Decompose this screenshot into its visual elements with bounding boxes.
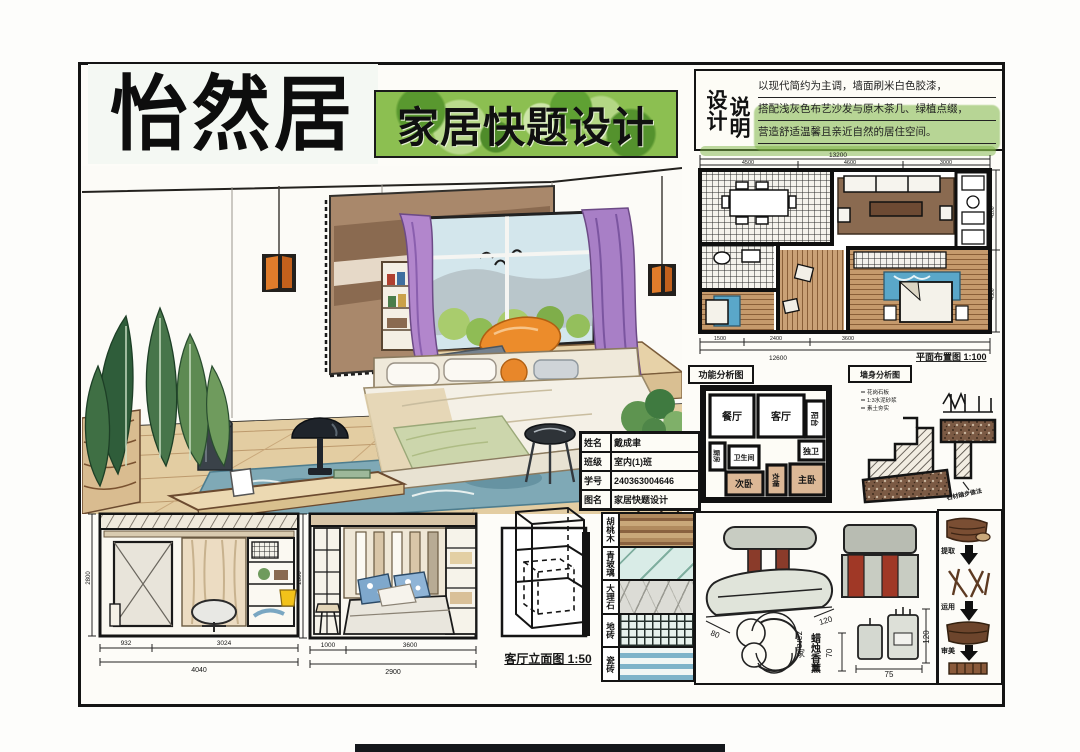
flow-arrow (960, 545, 978, 565)
prop-dim: 70 (825, 648, 834, 657)
material-swatch-wood (620, 514, 693, 546)
floor-plan: 13200 4500 4600 3000 (688, 150, 1002, 363)
info-table: 姓名 戴成聿 班级 室内(1)班 学号 240363004646 图名 家居快题… (579, 431, 701, 511)
section-notes: 花岗石板 1:3水泥砂浆 素土夯实 (861, 388, 897, 412)
design-notes-label: 设计 说明 (696, 71, 758, 149)
elev2-dim: 1000 (321, 642, 336, 649)
prop-sketches: 80 120 70 75 120 蜡烛香薰 zara家 (696, 513, 931, 678)
plan-dim-label: 3000 (940, 160, 952, 166)
material-swatch-glass (620, 548, 693, 580)
material-name: 大理石 (603, 581, 620, 613)
material-swatch-ceramic (620, 648, 693, 680)
elev1-shelf (248, 538, 296, 626)
flow-branches (949, 569, 989, 597)
elev2-left-shelf (314, 528, 340, 634)
function-diagram-title: 功能分析图 (698, 369, 743, 380)
cube-diagram (494, 506, 596, 646)
flow-wood-pile (947, 518, 990, 541)
room-label-bedroom2: 次卧 (735, 478, 753, 489)
concept-flow: 提取 运用 审美 (939, 511, 996, 678)
room-label-balcony: 阳台 (810, 412, 820, 427)
prop-dim: 80 (709, 629, 721, 641)
material-row: 地砖 (603, 615, 693, 649)
flow-arrow (960, 645, 978, 661)
plan-dim-label: 4600 (844, 160, 856, 166)
design-notes-line: 搭配浅灰色布艺沙发与原木茶几、绿植点缀， (758, 98, 996, 121)
elevations-caption: 客厅立面图 1:50 (478, 650, 618, 667)
svg-text:素土夯实: 素土夯实 (867, 404, 890, 412)
elev1-door (110, 542, 172, 626)
prop-dim: 120 (818, 614, 834, 626)
plan-dim-right (992, 170, 1000, 332)
material-swatch-tile (620, 615, 693, 647)
material-name: 瓷砖 (603, 648, 620, 680)
flow-step-label: 运用 (941, 603, 955, 611)
elev2-dim: 2900 (385, 669, 401, 676)
flow-step-label: 审美 (941, 646, 956, 655)
plan-dim-label: 3600 (842, 336, 854, 342)
material-row: 瓷砖 (603, 648, 693, 680)
info-label: 姓名 (581, 433, 611, 452)
prop-dim: 120 (922, 630, 931, 644)
info-value: 240363004646 (611, 471, 699, 490)
prop-note-brand: zara家 (795, 631, 805, 658)
wall-section-detail: 墙身分析图 花岗石板 1:3水泥砂浆 素土夯实 石材踏步做法 (847, 364, 1001, 510)
plan-dim-label: 13200 (829, 152, 847, 159)
diffuser-perspective (706, 527, 832, 617)
flow-arrow (960, 601, 978, 621)
room-label-dining: 餐厅 (721, 410, 742, 423)
plan-dim-label: 12600 (769, 355, 787, 362)
flow-result-strip (949, 663, 987, 674)
plan-bathroom (702, 246, 774, 288)
elev2-dim: 2800 (298, 571, 303, 585)
elevation-1: 932 3024 4040 2800 (84, 506, 316, 674)
info-label: 学号 (581, 471, 611, 490)
diffuser-front (842, 525, 918, 597)
material-name: 地砖 (603, 615, 620, 647)
flow-plank (947, 622, 989, 644)
presentation-board: 怡然居 家居快题设计 设计 说明 以现代简约为主调，墙面刷米白色胶漆， 搭配浅灰… (0, 0, 1080, 752)
room-label-living: 客厅 (770, 410, 791, 423)
plan-dim-label: 4500 (990, 288, 996, 299)
elev1-dim: 2800 (86, 571, 92, 585)
plan-caption: 平面布置图 1:100 (916, 351, 987, 362)
info-label: 班级 (581, 452, 611, 471)
info-value: 戴成聿 (611, 433, 699, 452)
prop-dim: 75 (885, 670, 894, 678)
plan-dim-label: 4500 (742, 160, 754, 166)
concept-flow-panel: 提取 运用 审美 (937, 509, 1003, 685)
elev2-dim: 3600 (403, 642, 418, 649)
wall-section-title: 墙身分析图 (860, 370, 900, 380)
candles (858, 607, 918, 659)
flow-step-label: 提取 (940, 546, 956, 555)
prop-sketch-panel: 80 120 70 75 120 蜡烛香薰 zara家 (694, 511, 938, 685)
design-notes-line: 以现代简约为主调，墙面刷米白色胶漆， (758, 75, 996, 98)
plan-dim-label: 2400 (770, 336, 782, 342)
plan-dim-label: 1500 (714, 336, 726, 342)
svg-text:花岗石板: 花岗石板 (867, 388, 890, 396)
svg-text:1:3水泥砂浆: 1:3水泥砂浆 (867, 396, 897, 404)
section-slab (941, 394, 995, 478)
prop-note-candle: 蜡烛香薰 (809, 632, 821, 674)
material-row: 青玻璃 (603, 548, 693, 582)
info-value: 室内(1)班 (611, 452, 699, 471)
room-label-ensuite: 独卫 (802, 446, 819, 456)
room-label-closet: 衣帽 (772, 473, 781, 487)
plan-corridor (780, 250, 844, 330)
room-label-bath: 卫生间 (734, 453, 755, 462)
plan-dim-label: 4200 (990, 206, 996, 217)
page-bottom-bar (355, 744, 725, 752)
function-diagram: 功能分析图 餐厅 客厅 阳台 厨房 卫生间 独卫 次卧 衣帽 主卧 (687, 364, 844, 510)
materials-legend: 胡桃木 青玻璃 大理石 地砖 瓷砖 (601, 512, 695, 682)
plan-body (700, 170, 990, 332)
subtitle-banner-text: 家居快题设计 (397, 94, 655, 155)
room-label-kitchen: 厨房 (713, 450, 722, 464)
section-steps (863, 418, 951, 502)
board-title: 怡然居 (88, 64, 378, 164)
material-swatch-marble (620, 581, 693, 613)
design-notes-body: 以现代简约为主调，墙面刷米白色胶漆， 搭配浅灰色布艺沙发与原木茶几、绿植点缀， … (758, 71, 1002, 149)
design-notes-box: 设计 说明 以现代简约为主调，墙面刷米白色胶漆， 搭配浅灰色布艺沙发与原木茶几、… (694, 69, 1004, 151)
material-name: 胡桃木 (603, 514, 620, 546)
subtitle-banner: 家居快题设计 (374, 90, 678, 158)
elev1-curtain (182, 538, 246, 632)
elev1-dim: 3024 (217, 640, 232, 647)
yarn-ball (737, 613, 800, 673)
material-name: 青玻璃 (603, 548, 620, 580)
info-value: 家居快题设计 (611, 490, 699, 509)
elev1-dim: 4040 (191, 667, 207, 674)
room-label-master: 主卧 (798, 474, 816, 485)
elevation-2: 1000 3600 2900 2800 (298, 504, 488, 676)
material-row: 大理石 (603, 581, 693, 615)
design-notes-line: 营造舒适温馨且亲近自然的居住空间。 (758, 121, 996, 144)
elev1-dim: 932 (121, 640, 132, 647)
material-row: 胡桃木 (603, 514, 693, 548)
board-title-text: 怡然居 (110, 73, 356, 155)
